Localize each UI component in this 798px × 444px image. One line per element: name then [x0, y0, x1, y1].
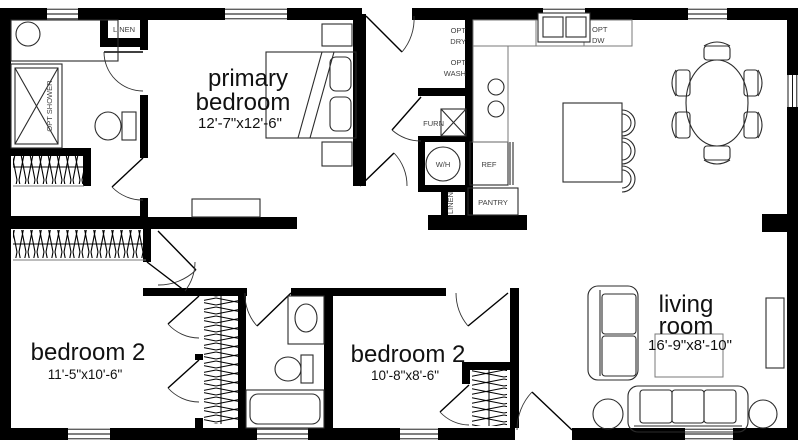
entry-door-opening — [515, 428, 572, 440]
kitchen-sink — [538, 13, 590, 42]
toilet — [95, 112, 136, 140]
window-bottom-3 — [400, 428, 438, 440]
door-opening-top-hall — [362, 8, 412, 20]
living-room-dims: 16'-9"x8'-10" — [648, 337, 732, 354]
opt-shower-label: OPT SHOWER — [45, 80, 54, 132]
bedroom3-closet — [472, 370, 507, 426]
linen-closet-label: LINEN — [446, 192, 455, 214]
bedroom2b-label: bedroom 2 — [351, 341, 466, 368]
bedroom2a-label: bedroom 2 — [31, 339, 146, 366]
living-room-label-2: room — [659, 313, 714, 340]
linen-hall-label: LINEN — [113, 25, 135, 34]
window-right — [787, 75, 798, 107]
window-bottom-2 — [257, 428, 308, 440]
primary-bedroom-dims: 12'-7"x12'-6" — [198, 115, 282, 132]
bedroom2-top-closet — [13, 230, 146, 260]
opt-dw-label-2: DW — [592, 36, 605, 45]
opt-dw-label-1: OPT — [592, 25, 608, 34]
window-bottom-1 — [68, 428, 110, 440]
window-bottom-4 — [685, 428, 733, 440]
opt-wash-label-2: WASH — [444, 69, 466, 78]
opt-wash-label-1: OPT — [451, 58, 467, 67]
primary-bedroom-label-1: primary — [208, 65, 288, 92]
pantry-label: PANTRY — [478, 198, 508, 207]
floor-plan: primary bedroom 12'-7"x12'-6" bedroom 2 … — [0, 0, 798, 444]
window-top-2 — [225, 8, 287, 20]
primary-bedroom-label-2: bedroom — [196, 89, 291, 116]
bedroom2b-dims: 10'-8"x8'-6" — [371, 368, 439, 383]
toilet2 — [275, 355, 313, 383]
ref-label: REF — [482, 160, 497, 169]
opt-dry-label-2: DRY — [450, 37, 466, 46]
water-heater-label: W/H — [436, 160, 451, 169]
opt-dry-label-1: OPT — [451, 26, 467, 35]
dressing-closet — [13, 150, 84, 186]
furn-label: FURN — [423, 119, 444, 128]
bedroom2a-dims: 11'-5"x10'-6" — [48, 367, 123, 382]
window-top-1 — [47, 8, 78, 20]
window-top-4 — [688, 8, 727, 20]
bedroom2-side-closet — [204, 292, 238, 424]
